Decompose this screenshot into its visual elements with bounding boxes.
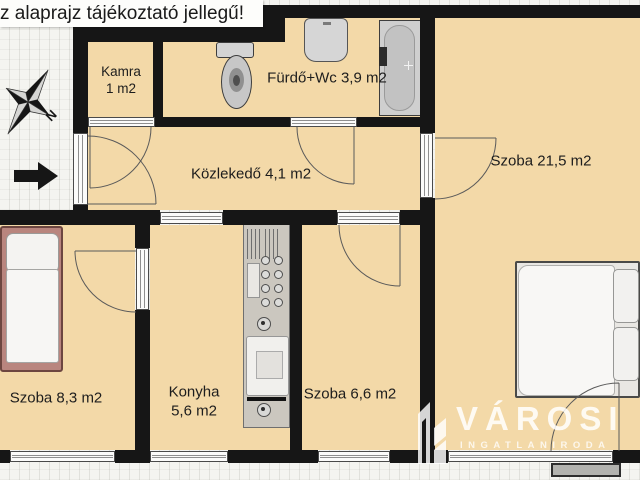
pillow-icon <box>6 233 59 273</box>
window <box>10 451 115 462</box>
disclaimer-text: z alaprajz tájékoztató jellegű! <box>0 0 263 27</box>
stove-knob-icon <box>274 284 283 293</box>
washbasin-icon <box>304 18 348 62</box>
wall <box>135 225 150 248</box>
stove-knob-icon <box>274 270 283 279</box>
entrance-door <box>73 133 88 205</box>
door-threshold-bedroom-small <box>136 248 149 310</box>
bathtub-faucet-icon <box>379 47 387 66</box>
counter-edge <box>247 397 286 401</box>
agency-subtitle: INGATLANIRODA <box>460 440 610 451</box>
single-bed-icon <box>0 226 63 372</box>
wall <box>135 310 150 450</box>
wall <box>263 5 640 18</box>
wall <box>73 27 285 42</box>
duvet-icon <box>6 269 59 363</box>
window <box>150 451 228 462</box>
entrance-arrow-icon <box>12 160 60 192</box>
double-bed-icon <box>515 261 640 398</box>
window <box>318 451 390 462</box>
stove-knob-icon <box>274 298 283 307</box>
counter-panel <box>247 263 260 298</box>
pillow-icon <box>613 269 639 323</box>
wall <box>420 5 435 133</box>
wall <box>0 450 10 463</box>
room-area: 5,6 m2 <box>169 402 220 421</box>
stove-knob-icon <box>261 256 270 265</box>
wall <box>400 210 435 225</box>
kitchen-counter-icon <box>243 220 290 428</box>
pillow-icon <box>613 327 639 381</box>
dish-drainer-icon <box>265 229 279 259</box>
wall <box>73 27 88 133</box>
compass-icon: N <box>0 58 75 148</box>
agency-name: VÁROSI <box>456 400 625 438</box>
room-label-bedroom-small: Szoba 8,3 m2 <box>10 390 103 409</box>
bathtub-icon <box>379 20 421 116</box>
stove-knob-icon <box>261 270 270 279</box>
wall <box>115 450 150 463</box>
agency-watermark: VÁROSI INGATLANIRODA <box>408 398 640 464</box>
wall <box>223 210 337 225</box>
stove-knob-icon <box>274 256 283 265</box>
stove-knob-icon <box>261 284 270 293</box>
room-label-bathroom: Fürdő+Wc 3,9 m2 <box>267 70 387 89</box>
room-name: Kamra <box>101 64 141 81</box>
door-threshold-bedroom-mid <box>337 212 400 224</box>
door-threshold-bathroom <box>290 117 357 127</box>
floor-plan: Kamra 1 m2 Fürdő+Wc 3,9 m2 Közlekedő 4,1… <box>0 0 640 480</box>
balcony-step <box>551 463 621 477</box>
wall <box>290 225 302 450</box>
stove-knob-icon <box>261 298 270 307</box>
door-threshold-kitchen <box>160 212 223 224</box>
wall <box>228 450 318 463</box>
wall <box>0 210 160 225</box>
wall <box>357 117 420 127</box>
bathtub-drain-icon <box>404 61 413 70</box>
room-label-kitchen: Konyha 5,6 m2 <box>169 383 220 421</box>
room-label-bedroom-large: Szoba 21,5 m2 <box>491 153 592 172</box>
agency-logo-icon <box>412 398 456 464</box>
room-floor-bedroom-mid <box>302 225 420 450</box>
room-area: 1 m2 <box>101 81 141 98</box>
stove-burner-icon <box>257 317 271 331</box>
door-threshold-kamra <box>88 117 155 127</box>
toilet-icon <box>221 55 252 109</box>
dish-drainer-icon <box>247 229 260 259</box>
room-label-kamra: Kamra 1 m2 <box>101 64 141 98</box>
wall <box>153 42 163 127</box>
door-threshold-bedroom-large <box>420 133 433 198</box>
room-name: Konyha <box>169 383 220 402</box>
wall <box>263 5 285 42</box>
wall <box>163 117 290 127</box>
stove-burner-icon <box>257 403 271 417</box>
room-label-hallway: Közlekedő 4,1 m2 <box>191 166 311 185</box>
room-label-bedroom-mid: Szoba 6,6 m2 <box>304 386 397 405</box>
kitchen-sink-icon <box>246 336 289 396</box>
duvet-icon <box>518 265 615 396</box>
